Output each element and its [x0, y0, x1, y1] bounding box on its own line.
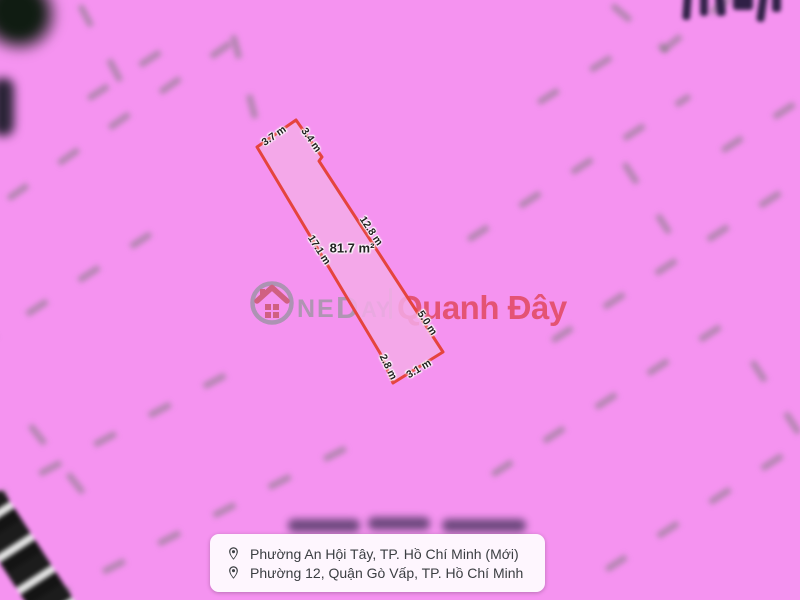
- location-pin-icon: [226, 565, 241, 580]
- location-line: Phường 12, Quận Gò Vấp, TP. Hồ Chí Minh: [250, 565, 523, 581]
- location-row: Phường 12, Quận Gò Vấp, TP. Hồ Chí Minh: [226, 565, 545, 581]
- location-row: Phường An Hội Tây, TP. Hồ Chí Minh (Mới): [226, 546, 545, 562]
- location-card: Phường An Hội Tây, TP. Hồ Chí Minh (Mới)…: [210, 534, 545, 592]
- location-pin-icon: [226, 546, 241, 561]
- map-viewport[interactable]: NE D AY Quanh Đây 3.7 m 3.4 m 17.1 m 12.…: [0, 0, 800, 600]
- parcel-layer: [0, 0, 800, 600]
- location-line: Phường An Hội Tây, TP. Hồ Chí Minh (Mới): [250, 546, 519, 562]
- parcel-area-label: 81.7 m²: [330, 241, 375, 256]
